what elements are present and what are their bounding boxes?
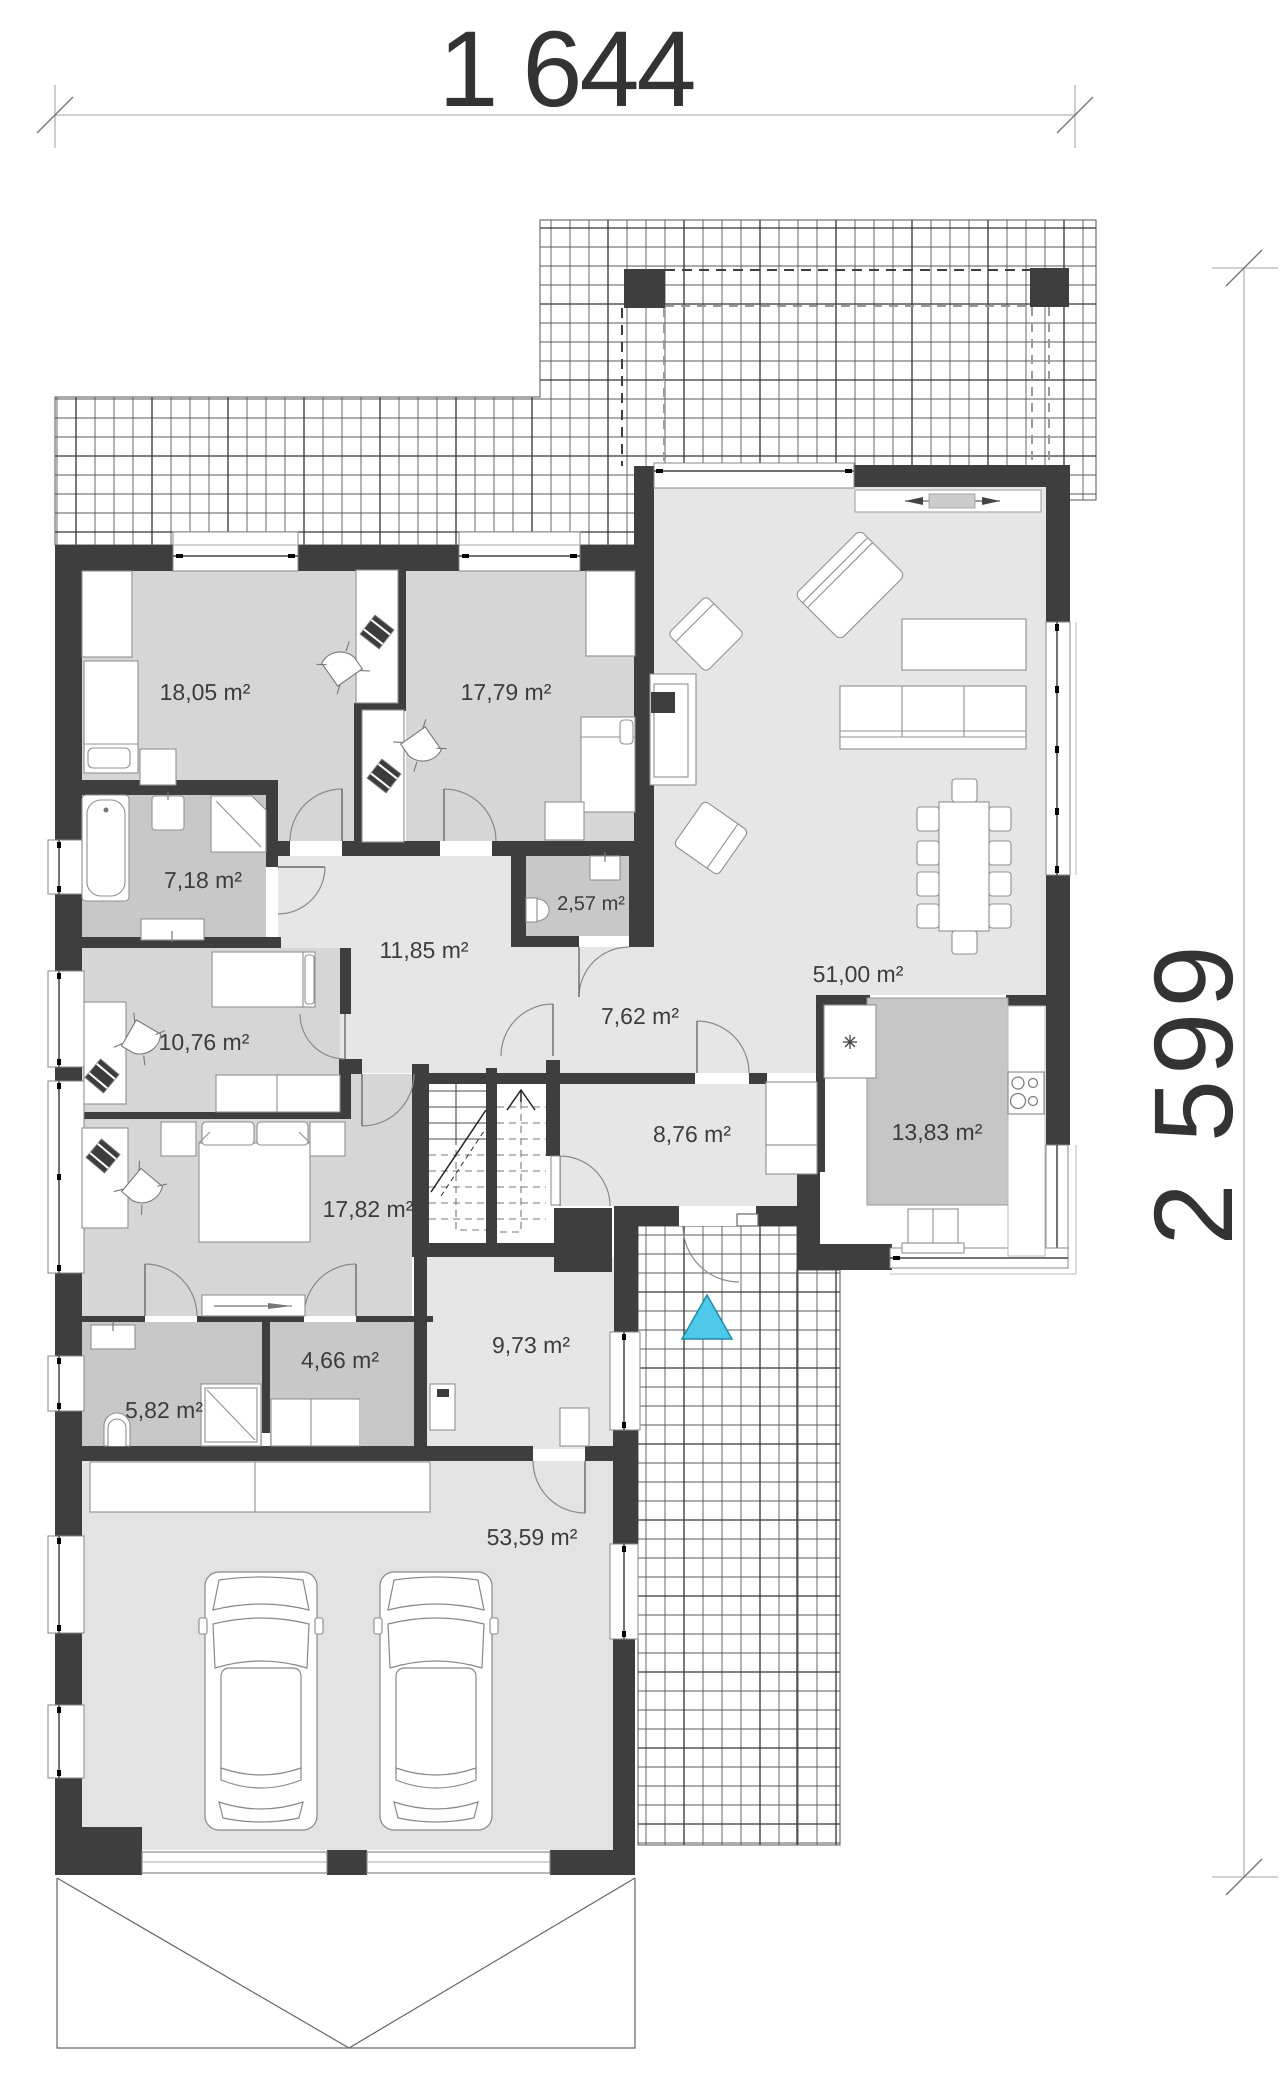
- svg-text:7,62 m²: 7,62 m²: [601, 1003, 679, 1029]
- svg-text:13,83 m²: 13,83 m²: [892, 1119, 983, 1145]
- svg-text:7,18 m²: 7,18 m²: [164, 867, 242, 893]
- svg-text:8,76 m²: 8,76 m²: [653, 1121, 731, 1147]
- svg-text:1 644: 1 644: [438, 8, 693, 129]
- svg-text:9,73 m²: 9,73 m²: [492, 1332, 570, 1358]
- svg-text:51,00 m²: 51,00 m²: [813, 961, 904, 987]
- svg-text:2 599: 2 599: [1131, 940, 1256, 1245]
- svg-text:5,82 m²: 5,82 m²: [125, 1397, 203, 1423]
- svg-text:17,82 m²: 17,82 m²: [323, 1196, 414, 1222]
- svg-text:4,66 m²: 4,66 m²: [301, 1347, 379, 1373]
- svg-text:2,57 m²: 2,57 m²: [557, 893, 625, 915]
- svg-text:53,59 m²: 53,59 m²: [487, 1524, 578, 1550]
- svg-text:10,76 m²: 10,76 m²: [159, 1029, 250, 1055]
- svg-text:11,85 m²: 11,85 m²: [379, 937, 468, 963]
- svg-text:18,05 m²: 18,05 m²: [160, 679, 251, 705]
- svg-text:17,79 m²: 17,79 m²: [461, 679, 552, 705]
